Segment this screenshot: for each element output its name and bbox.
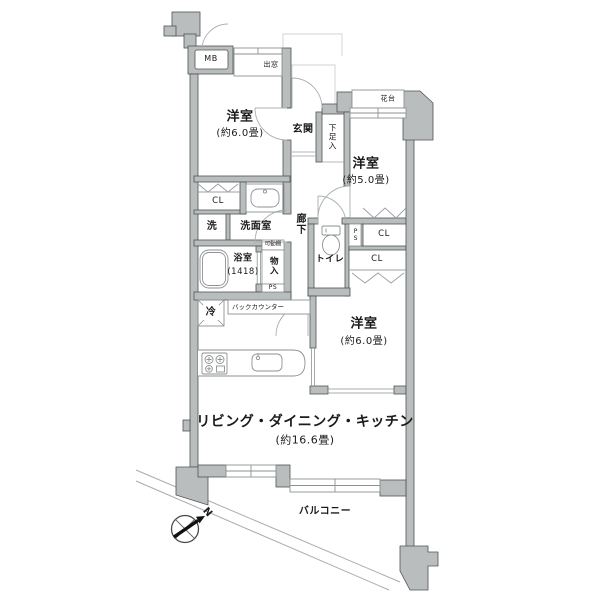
- balcony-label: バルコニー: [299, 507, 351, 517]
- toilet-fixture: [322, 226, 340, 255]
- pipe-space-a-label: PS: [269, 285, 277, 291]
- bedroom1-size: (約6.0畳): [216, 129, 263, 139]
- washroom-label: 洗面室: [240, 222, 272, 232]
- bedroom2-name: 洋室: [352, 158, 379, 171]
- shoe-cabinet-label: 下足入: [328, 124, 336, 151]
- bathtub: [200, 250, 228, 288]
- vanity-unit: [246, 184, 284, 212]
- compass-icon: [172, 516, 206, 543]
- laundry-label: 洗: [207, 222, 218, 232]
- front-door-arc: [292, 78, 322, 108]
- kitchen-counter: [198, 350, 305, 376]
- pillar-top-right: [403, 91, 433, 140]
- movable-shelf-label: 可動棚: [265, 242, 282, 248]
- pillar-bottom-right: [400, 546, 438, 590]
- closet-c-label: CL: [371, 255, 383, 264]
- bedroom3-size: (約6.0畳): [340, 337, 387, 347]
- closet-a-label: CL: [212, 197, 224, 206]
- closet-b-label: CL: [378, 230, 390, 239]
- bedroom2-door-arc: [318, 186, 350, 218]
- bedroom3-name: 洋室: [350, 318, 377, 331]
- bay-window-label: 出窓: [264, 62, 279, 69]
- back-counter-label: バックカウンター: [232, 304, 284, 311]
- bedroom2-size: (約5.0畳): [342, 176, 389, 186]
- bathroom-size: (1418): [227, 268, 258, 277]
- left-wall: [190, 74, 198, 467]
- right-wall: [406, 136, 414, 548]
- ldk-size: (約16.6畳): [275, 435, 334, 446]
- balcony-windows: [226, 465, 380, 492]
- flower-shelf-window: [350, 90, 406, 118]
- refrigerator-label: 冷: [206, 308, 217, 318]
- pipe-space-b-label: PS: [352, 228, 358, 242]
- toilet-label: トイレ: [316, 256, 345, 265]
- bathroom-name: 浴室: [233, 255, 252, 264]
- floor-plan: MB 出窓 花台 洋室 (約6.0畳) 玄関 下足入 洋室 (約5.0畳) CL…: [0, 0, 600, 600]
- hallway-label: 廊下: [294, 213, 304, 235]
- bedroom1-name: 洋室: [226, 111, 253, 124]
- entrance-label: 玄関: [293, 125, 314, 135]
- meter-box-label: MB: [204, 55, 217, 63]
- left-wall-nub: [183, 420, 190, 431]
- flower-shelf-label: 花台: [381, 96, 396, 103]
- storage-label: 物入: [269, 257, 278, 276]
- ldk-name: リビング・ダイニング・キッチン: [196, 415, 414, 429]
